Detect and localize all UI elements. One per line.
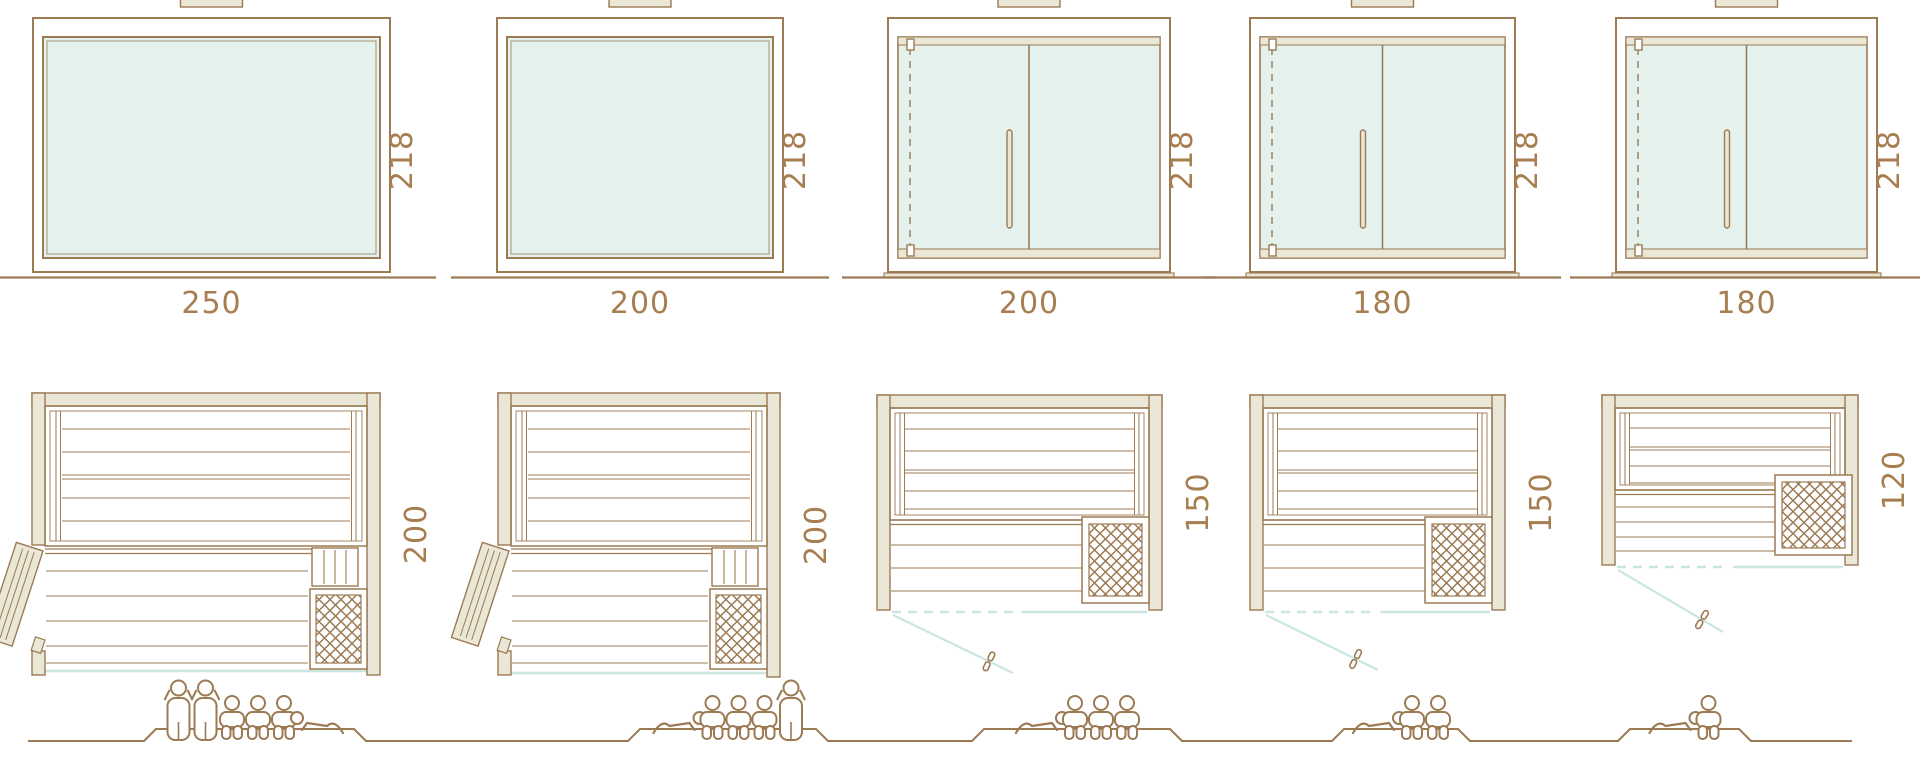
roof-tab: [1352, 0, 1414, 7]
floor-plan: 200: [0, 393, 434, 675]
person-sitting-icon: [1063, 696, 1087, 739]
capacity-figures: [654, 681, 806, 741]
floor-plan: 200: [451, 393, 834, 677]
sauna-180x120: 180218120: [1570, 0, 1920, 739]
front-elevation: 180218: [1570, 0, 1920, 321]
heater-icon: [310, 589, 367, 669]
roof-tab: [998, 0, 1060, 7]
sauna-200x150: 200218150: [842, 0, 1216, 739]
floor-plan: 120: [1602, 395, 1912, 632]
bench-upper: [45, 406, 367, 546]
person-sitting-icon: [246, 696, 270, 739]
person-standing-icon: [165, 681, 193, 741]
capacity-figures: [165, 681, 344, 741]
sauna-250x200: 250218200: [0, 0, 436, 740]
floor-plan: 150: [1250, 395, 1559, 670]
height-dimension-label: 218: [778, 130, 813, 190]
person-sitting-icon: [1426, 696, 1450, 739]
person-standing-icon: [192, 681, 220, 741]
front-elevation: 200218: [842, 0, 1216, 321]
depth-dimension-label: 200: [399, 504, 434, 564]
backrest-slats: [312, 548, 358, 586]
height-dimension-label: 218: [1510, 130, 1545, 190]
door-handle-icon: [1007, 130, 1012, 228]
front-elevation: 200218: [451, 0, 829, 321]
glass-panel: [1260, 37, 1505, 258]
person-standing-icon: [777, 681, 805, 741]
front-elevation: 250218: [0, 0, 436, 321]
capacity-figures: [1353, 696, 1450, 739]
heater-icon: [1082, 517, 1149, 603]
door-swing: [1266, 615, 1378, 670]
bench-lower: [512, 571, 708, 663]
person-sitting-icon: [1089, 696, 1113, 739]
open-door-leaf: [451, 542, 511, 653]
width-dimension-label: 180: [1716, 286, 1776, 321]
open-door-leaf: [0, 542, 45, 653]
person-sitting-icon: [220, 696, 244, 739]
bench-lower: [46, 571, 308, 663]
sauna-180x150: 180218150: [1204, 0, 1561, 739]
glass-panel: [43, 37, 380, 258]
front-elevation: 180218: [1204, 0, 1561, 321]
diagram-canvas: 2502182002002182002002181501802181501802…: [0, 0, 1920, 770]
person-sitting-icon: [701, 696, 725, 739]
roof-tab: [1716, 0, 1778, 7]
glass-panel: [507, 37, 773, 258]
floor-plan: 150: [877, 395, 1216, 673]
depth-dimension-label: 120: [1877, 450, 1912, 510]
width-dimension-label: 180: [1352, 286, 1412, 321]
depth-dimension-label: 150: [1181, 472, 1216, 532]
person-sitting-icon: [1115, 696, 1139, 739]
width-dimension-label: 200: [999, 286, 1059, 321]
width-dimension-label: 250: [181, 286, 241, 321]
bench-upper: [1263, 408, 1492, 520]
heater-icon: [710, 589, 767, 669]
sauna-size-comparison-diagram: 2502182002002182002002181501802181501802…: [0, 0, 1920, 770]
sauna-200x200: 200218200: [451, 0, 834, 740]
glass-panel: [898, 37, 1160, 258]
height-dimension-label: 218: [1872, 130, 1907, 190]
bench-upper: [511, 406, 767, 546]
person-sitting-icon: [727, 696, 751, 739]
height-dimension-label: 218: [385, 130, 420, 190]
door-swing: [893, 615, 1013, 673]
backrest-slats: [712, 548, 758, 586]
roof-tab: [181, 0, 243, 7]
door-swing: [1618, 570, 1723, 632]
heater-icon: [1425, 517, 1492, 603]
door-handle-icon: [1725, 130, 1730, 228]
width-dimension-label: 200: [610, 286, 670, 321]
bench-upper: [890, 408, 1149, 520]
person-sitting-icon: [1400, 696, 1424, 739]
person-sitting-icon: [1697, 696, 1721, 739]
person-sitting-icon: [753, 696, 777, 739]
depth-dimension-label: 150: [1524, 472, 1559, 532]
glass-panel: [1626, 37, 1867, 258]
height-dimension-label: 218: [1165, 130, 1200, 190]
capacity-figures: [1016, 696, 1139, 739]
capacity-figures: [1650, 696, 1721, 739]
heater-icon: [1775, 475, 1852, 555]
door-handle-icon: [1361, 130, 1366, 228]
depth-dimension-label: 200: [799, 505, 834, 565]
roof-tab: [609, 0, 671, 7]
